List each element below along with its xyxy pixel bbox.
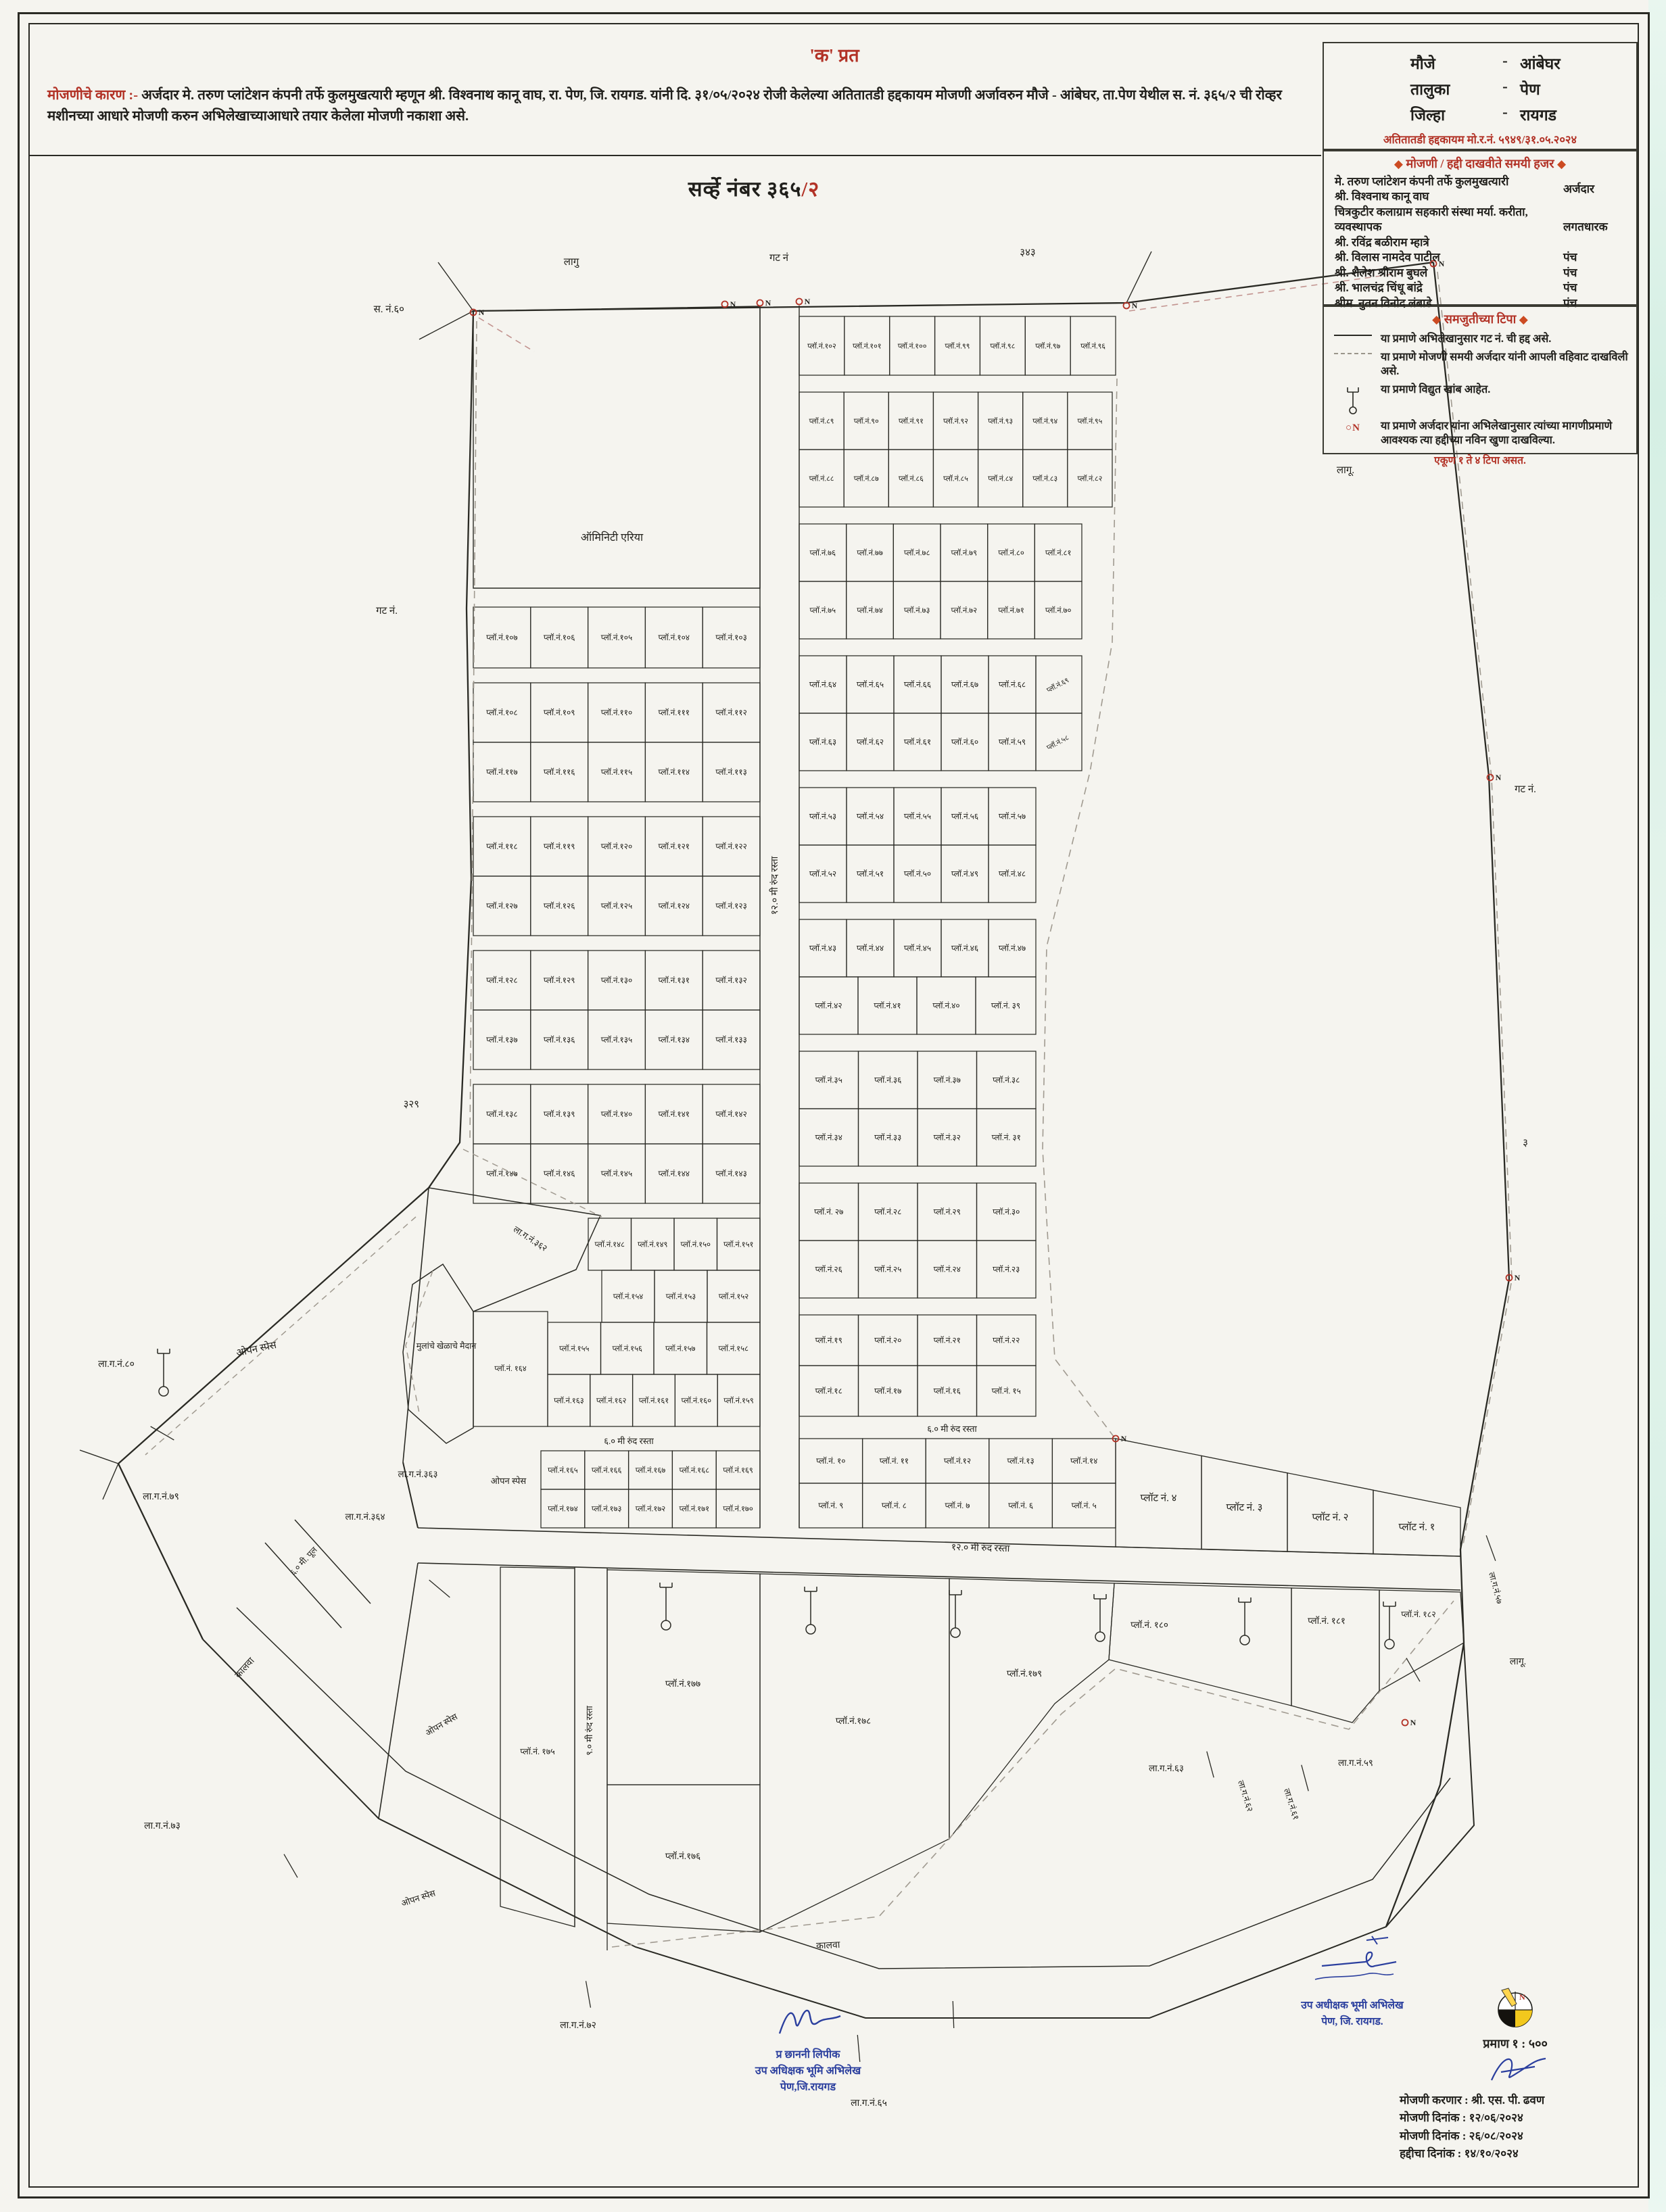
village-info-box: मौजे - आंबेघर तालुका - पेण जिल्हा - रायग… xyxy=(1323,42,1638,150)
svg-text:ला.ग.नं.६३: ला.ग.नं.६३ xyxy=(1149,1763,1184,1773)
village-row: मौजे - आंबेघर xyxy=(1324,50,1636,76)
svg-text:प्लॉ.नं.६२: प्लॉ.नं.६२ xyxy=(857,738,884,747)
svg-text:प्लॉ.नं.८२: प्लॉ.नं.८२ xyxy=(1077,475,1102,483)
svg-text:प्लॉ.नं.१७४: प्लॉ.नं.१७४ xyxy=(548,1505,578,1514)
svg-text:प्लॉ.नं.१२८: प्लॉ.नं.१२८ xyxy=(486,976,518,985)
svg-text:ला.ग.नं.६५: ला.ग.नं.६५ xyxy=(851,2098,887,2109)
svg-text:प्लॉ.नं.१५६: प्लॉ.नं.१५६ xyxy=(612,1345,642,1353)
diamond-icon: ◆ xyxy=(1432,313,1441,326)
svg-text:प्लॉ.नं. १८१: प्लॉ.नं. १८१ xyxy=(1308,1616,1346,1626)
svg-text:प्लॉ.नं.८८: प्लॉ.नं.८८ xyxy=(809,475,834,483)
svg-text:प्लॉ.नं.१३९: प्लॉ.नं.१३९ xyxy=(544,1109,575,1119)
svg-text:प्लॉ.नं.१७६: प्लॉ.नं.१७६ xyxy=(665,1851,700,1861)
svg-text:प्लॉ.नं.१७१: प्लॉ.नं.१७१ xyxy=(679,1505,709,1514)
svg-text:प्लॉ.नं.१०१: प्लॉ.नं.१०१ xyxy=(853,342,882,351)
svg-text:प्लॉ.नं.५०: प्लॉ.नं.५० xyxy=(904,869,931,879)
svg-text:प्लॉ.नं. १५: प्लॉ.नं. १५ xyxy=(992,1387,1021,1396)
svg-text:प्लॉ.नं.१२: प्लॉ.नं.१२ xyxy=(944,1456,971,1466)
svg-text:प्लॉ.नं.७४: प्लॉ.नं.७४ xyxy=(857,606,883,615)
svg-text:प्लॉ.नं.२०: प्लॉ.नं.२० xyxy=(874,1336,901,1345)
svg-text:प्लॉ.नं.१२३: प्लॉ.नं.१२३ xyxy=(715,901,747,911)
svg-text:प्लॉ.नं.८३: प्लॉ.नं.८३ xyxy=(1032,475,1057,483)
map-title: सर्व्हे नंबर ३६५/२ xyxy=(270,174,1237,203)
svg-text:प्लॉ.नं.२१: प्लॉ.नं.२१ xyxy=(934,1336,961,1345)
svg-text:प्लॉ.नं.४७: प्लॉ.नं.४७ xyxy=(999,944,1026,953)
svg-text:प्लॉ.नं.५५: प्लॉ.नं.५५ xyxy=(904,812,931,821)
district-label: जिल्हा xyxy=(1410,103,1490,125)
svg-text:प्लॉ.नं.७८: प्लॉ.नं.७८ xyxy=(904,549,930,558)
person-role: पंच xyxy=(1563,250,1628,265)
svg-text:प्लॉ.नं.१३३: प्लॉ.नं.१३३ xyxy=(715,1035,747,1044)
person-role: अर्जदार xyxy=(1563,182,1628,197)
taluka-label: तालुका xyxy=(1410,78,1490,99)
clerk-signature-block: प्र छाननी लिपीक उप अधिक्षक भूमि अभिलेख प… xyxy=(696,2002,920,2096)
svg-text:प्लॉ.नं.१४५: प्लॉ.नं.१४५ xyxy=(601,1169,633,1178)
svg-text:प्लॉ.नं.८५: प्लॉ.नं.८५ xyxy=(943,475,968,483)
svg-text:प्लॉ.नं.५१: प्लॉ.नं.५१ xyxy=(857,869,884,879)
svg-text:प्लॉ.नं.१६१: प्लॉ.नं.१६१ xyxy=(639,1397,669,1405)
svg-text:६.० मी. पूल: ६.० मी. पूल xyxy=(288,1544,320,1577)
person-name: श्री. भालचंद्र चिंधू बांद्रे xyxy=(1335,281,1563,295)
svg-text:प्लॉ.नं.४०: प्लॉ.नं.४० xyxy=(932,1001,959,1011)
svg-text:प्लॉ.नं.३६: प्लॉ.नं.३६ xyxy=(874,1076,901,1085)
dash: - xyxy=(1490,78,1520,99)
surveyor-signature-icon xyxy=(1478,2052,1552,2087)
measurement-reason: मोजणीचे कारण :- अर्जदार मे. तरुण प्लांटे… xyxy=(47,85,1305,127)
svg-text:प्लॉ.नं.५२: प्लॉ.नं.५२ xyxy=(809,869,836,879)
svg-text:प्लॉ.नं.१०२: प्लॉ.नं.१०२ xyxy=(807,342,836,351)
legend-notes-title: ◆ समजुतीच्या टिपा ◆ xyxy=(1329,311,1631,327)
svg-text:प्लॉ.नं.३५: प्लॉ.नं.३५ xyxy=(815,1076,842,1085)
svg-text:प्लॉ.नं.६८: प्लॉ.नं.६८ xyxy=(999,680,1026,690)
person-name: मे. तरुण प्लांटेशन कंपनी तर्फे कुलमुखत्य… xyxy=(1335,174,1563,205)
svg-text:ला.ग.नं.३६२: ला.ग.नं.३६२ xyxy=(512,1224,550,1253)
svg-text:प्लॉ.नं. ८: प्लॉ.नं. ८ xyxy=(882,1501,907,1510)
svg-text:ला.ग.नं.३६४: ला.ग.नं.३६४ xyxy=(346,1512,385,1522)
svg-text:प्लॉ.नं.९९: प्लॉ.नं.९९ xyxy=(945,342,970,351)
svg-text:प्लॉ.नं.५६: प्लॉ.नं.५६ xyxy=(951,812,978,821)
svg-text:ला.ग.नं.५९: ला.ग.नं.५९ xyxy=(1338,1758,1373,1768)
svg-text:प्लॉ.नं. २७: प्लॉ.नं. २७ xyxy=(814,1207,843,1217)
legend-notes-box: ◆ समजुतीच्या टिपा ◆ या प्रमाणे अभिलेखानु… xyxy=(1323,306,1638,454)
svg-text:ला.ग.नं.६२: ला.ग.नं.६२ xyxy=(1236,1779,1255,1813)
svg-text:प्लॉ.नं.११६: प्लॉ.नं.११६ xyxy=(544,767,575,777)
svg-text:प्लॉ.नं.२८: प्लॉ.नं.२८ xyxy=(874,1207,901,1217)
svg-text:प्लॉ.नं.११३: प्लॉ.नं.११३ xyxy=(715,767,747,777)
svg-text:मुलांचे खेळाचे मैदान: मुलांचे खेळाचे मैदान xyxy=(416,1341,477,1351)
svg-text:प्लॉ.नं.१४४: प्लॉ.नं.१४४ xyxy=(659,1169,690,1178)
clerk-line1: प्र छाननी लिपीक xyxy=(696,2047,920,2063)
svg-text:प्लॉ.नं.६१: प्लॉ.नं.६१ xyxy=(904,738,931,747)
solid-line-icon xyxy=(1331,332,1375,336)
svg-text:प्लॉ.नं.१२४: प्लॉ.नं.१२४ xyxy=(659,901,690,911)
svg-text:प्लॉ.नं.३०: प्लॉ.नं.३० xyxy=(993,1207,1020,1217)
svg-text:प्लॉ.नं.१५५: प्लॉ.नं.१५५ xyxy=(559,1345,590,1353)
persons-present-title-text: मोजणी / हद्दी दाखवीते समयी हजर xyxy=(1406,157,1554,170)
legend-note-row: या प्रमाणे विद्युत खांब आहेत. xyxy=(1329,381,1631,417)
legend-notes-title-text: समजुतीच्या टिपा xyxy=(1444,312,1517,326)
svg-text:प्लॉ.नं.१३७: प्लॉ.नं.१३७ xyxy=(486,1035,518,1044)
svg-text:ओपन स्पेस: ओपन स्पेस xyxy=(400,1888,437,1908)
svg-text:६.० मी रुंद रस्ता: ६.० मी रुंद रस्ता xyxy=(604,1436,654,1446)
svg-text:प्लॉ.नं.१४३: प्लॉ.नं.१४३ xyxy=(715,1169,747,1178)
svg-text:N: N xyxy=(1132,301,1138,310)
svg-text:प्लॉ.नं.१३६: प्लॉ.नं.१३६ xyxy=(544,1035,575,1044)
svg-text:N: N xyxy=(765,298,771,308)
svg-text:प्लॉ.नं. १८२: प्लॉ.नं. १८२ xyxy=(1401,1610,1436,1619)
svg-text:प्लॉ.नं.१०९: प्लॉ.नं.१०९ xyxy=(544,708,575,717)
svg-text:प्लॉ.नं.४१: प्लॉ.नं.४१ xyxy=(874,1001,901,1011)
svg-text:प्लॉ.नं.४८: प्लॉ.नं.४८ xyxy=(999,869,1026,879)
svg-text:प्लॉ.नं.११९: प्लॉ.नं.११९ xyxy=(544,842,575,851)
svg-text:प्लॉ.नं.१५९: प्लॉ.नं.१५९ xyxy=(723,1397,754,1405)
svg-text:प्लॉ.नं.८६: प्लॉ.नं.८६ xyxy=(899,475,924,483)
svg-text:प्लॉ.नं.१४०: प्लॉ.नं.१४० xyxy=(601,1109,633,1119)
svg-text:लागू.: लागू. xyxy=(1510,1657,1527,1667)
svg-text:प्लॉ.नं.१८: प्लॉ.नं.१८ xyxy=(815,1387,842,1396)
svg-text:प्लॉ.नं.१६७: प्लॉ.नं.१६७ xyxy=(636,1466,666,1475)
electric-pole-icon xyxy=(1331,383,1375,415)
survey-map-sheet: NNNNNNNNNNप्लॉ.नं.१०७प्लॉ.नं.१०६प्लॉ.नं.… xyxy=(0,0,1666,2212)
reason-text: अर्जदार मे. तरुण प्लांटेशन कंपनी तर्फे क… xyxy=(47,88,1282,124)
svg-text:प्लॉ.नं.१०६: प्लॉ.नं.१०६ xyxy=(544,633,575,642)
svg-text:प्लॉ.नं. ३१: प्लॉ.नं. ३१ xyxy=(992,1133,1021,1143)
svg-text:प्लॉ.नं.५४: प्लॉ.नं.५४ xyxy=(857,812,884,821)
svg-text:प्लॉ.नं.१६५: प्लॉ.नं.१६५ xyxy=(548,1466,578,1475)
svg-text:प्लॉ.नं.१३१: प्लॉ.नं.१३१ xyxy=(659,976,690,985)
svg-text:प्लॉ.नं.१५४: प्लॉ.नं.१५४ xyxy=(613,1293,644,1301)
svg-text:प्लॉ.नं. ६: प्लॉ.नं. ६ xyxy=(1008,1501,1033,1510)
svg-text:प्लॉ.नं.१४२: प्लॉ.नं.१४२ xyxy=(715,1109,747,1119)
svg-text:प्लॉ.नं.२४: प्लॉ.नं.२४ xyxy=(934,1265,961,1274)
svg-text:प्लॉ.नं.१४: प्लॉ.नं.१४ xyxy=(1070,1456,1097,1466)
svg-text:प्लॉ.नं.१९: प्लॉ.नं.१९ xyxy=(815,1336,842,1345)
person-name: चित्रकुटीर कलाग्राम सहकारी संस्था मर्या.… xyxy=(1335,205,1563,250)
svg-text:प्लॉ.नं. ११: प्लॉ.नं. ११ xyxy=(880,1456,909,1466)
svg-text:प्लॉ.नं.८०: प्लॉ.नं.८० xyxy=(998,549,1024,558)
person-role: पंच xyxy=(1563,281,1628,295)
svg-text:६.० मी रुंद रस्ता: ६.० मी रुंद रस्ता xyxy=(927,1424,977,1434)
svg-text:प्लॉट नं. १: प्लॉट नं. १ xyxy=(1399,1521,1435,1533)
svg-text:प्लॉ.नं.७०: प्लॉ.नं.७० xyxy=(1045,606,1072,615)
legend-note-row: या प्रमाणे अभिलेखानुसार गट नं. ची हद्द अ… xyxy=(1329,330,1631,348)
dashed-line-icon xyxy=(1331,350,1375,354)
svg-text:प्लॉ.नं.१४८: प्लॉ.नं.१४८ xyxy=(594,1241,625,1249)
legend-note-text: या प्रमाणे अभिलेखानुसार गट नं. ची हद्द अ… xyxy=(1381,332,1551,346)
person-name: श्री. शैलेश श्रीराम बुघले xyxy=(1335,266,1563,281)
svg-text:ओपन स्पेस: ओपन स्पेस xyxy=(423,1711,459,1737)
svg-text:N: N xyxy=(1496,773,1502,782)
survey-date-1: मोजणी दिनांक : १२/०६/२०२४ xyxy=(1400,2109,1639,2127)
person-name: श्री. विलास नामदेव पाटील xyxy=(1335,250,1563,265)
svg-text:प्लॉ.नं.१३०: प्लॉ.नं.१३० xyxy=(601,976,633,985)
case-number-line: अतितातडी हद्दकायम मो.र.नं. ५९४९/३१.०५.२०… xyxy=(1324,131,1636,147)
svg-text:प्लॉ.नं.१५३: प्लॉ.नं.१५३ xyxy=(666,1293,696,1301)
svg-text:प्लॉ.नं.३८: प्लॉ.नं.३८ xyxy=(993,1076,1020,1085)
svg-text:प्लॉ.नं.१२९: प्लॉ.नं.१२९ xyxy=(544,976,575,985)
diamond-icon: ◆ xyxy=(1394,158,1403,170)
map-title-main: सर्व्हे नंबर ३६५ xyxy=(688,177,802,201)
svg-text:प्लॉ.नं.१११: प्लॉ.नं.१११ xyxy=(659,708,690,717)
svg-text:प्लॉ.नं.९५: प्लॉ.नं.९५ xyxy=(1077,417,1102,426)
officer-signature-icon xyxy=(1302,1935,1403,1993)
svg-text:प्लॉट नं. ३: प्लॉट नं. ३ xyxy=(1227,1501,1263,1514)
svg-text:प्लॉ.नं.५७: प्लॉ.नं.५७ xyxy=(999,812,1026,821)
svg-text:३२९: ३२९ xyxy=(404,1099,419,1110)
svg-text:N: N xyxy=(1519,1992,1525,2002)
svg-text:प्लॉ.नं.९०: प्लॉ.नं.९० xyxy=(854,417,879,426)
svg-text:प्लॉ.नं.१२२: प्लॉ.नं.१२२ xyxy=(715,842,747,851)
legend-note-text: या प्रमाणे अर्जदार यांना अभिलेखानुसार त्… xyxy=(1381,419,1629,448)
svg-text:९.० मी रुंद रस्ता: ९.० मी रुंद रस्ता xyxy=(584,1706,594,1756)
svg-text:प्लॉ.नं.१५१: प्लॉ.नं.१५१ xyxy=(723,1241,754,1249)
dash: - xyxy=(1490,52,1520,74)
svg-text:प्लॉ.नं.७६: प्लॉ.नं.७६ xyxy=(810,549,836,558)
svg-text:ला.ग.नं.८०: ला.ग.नं.८० xyxy=(98,1359,135,1370)
svg-text:प्लॉ.नं.३७: प्लॉ.नं.३७ xyxy=(934,1076,961,1085)
diamond-icon: ◆ xyxy=(1519,313,1528,326)
svg-text:प्लॉ.नं.१२७: प्लॉ.नं.१२७ xyxy=(486,901,518,911)
svg-text:प्लॉ.नं. १०: प्लॉ.नं. १० xyxy=(816,1456,845,1466)
clerk-line3: पेण,जि.रायगड xyxy=(696,2079,920,2096)
svg-text:प्लॉ.नं.११०: प्लॉ.नं.११० xyxy=(601,708,633,717)
svg-text:N: N xyxy=(1515,1273,1521,1282)
north-compass-icon: N xyxy=(1494,1986,1537,2029)
svg-text:प्लॉ.नं. १८०: प्लॉ.नं. १८० xyxy=(1130,1620,1168,1630)
scale-and-dates-block: N प्रमाण १ : ५०० मोजणी करणार : श्री. एस.… xyxy=(1391,1986,1639,2163)
svg-text:प्लॉ.नं.९३: प्लॉ.नं.९३ xyxy=(988,417,1013,426)
svg-text:प्लॉ.नं.७३: प्लॉ.नं.७३ xyxy=(904,606,930,615)
svg-text:प्लॉ.नं.१६३: प्लॉ.नं.१६३ xyxy=(554,1397,584,1405)
dash: - xyxy=(1490,103,1520,125)
surveyor-name: मोजणी करणार : श्री. एस. पी. ढवण xyxy=(1400,2092,1639,2109)
svg-text:प्लॉ.नं. १६४: प्लॉ.नं. १६४ xyxy=(494,1364,526,1373)
svg-text:प्लॉ.नं.४४: प्लॉ.नं.४४ xyxy=(857,944,884,953)
person-role: पंच xyxy=(1563,266,1628,281)
svg-text:प्लॉ.नं. ९: प्लॉ.नं. ९ xyxy=(818,1501,843,1510)
svg-text:प्लॉ.नं. ५: प्लॉ.नं. ५ xyxy=(1072,1501,1097,1510)
svg-text:३: ३ xyxy=(1523,1138,1528,1149)
svg-text:ऑमिनिटी एरिया: ऑमिनिटी एरिया xyxy=(581,531,644,544)
persons-present-box: ◆ मोजणी / हद्दी दाखवीते समयी हजर ◆ मे. त… xyxy=(1323,150,1638,306)
clerk-signature-icon xyxy=(767,2002,849,2042)
svg-text:प्लॉ.नं.८४: प्लॉ.नं.८४ xyxy=(988,475,1013,483)
reason-label: मोजणीचे कारण :- xyxy=(47,88,138,103)
svg-text:प्लॉ.नं.६९: प्लॉ.नं.६९ xyxy=(1045,675,1070,694)
legend-note-row: ○Nया प्रमाणे अर्जदार यांना अभिलेखानुसार … xyxy=(1329,417,1631,450)
svg-text:प्लॉ.नं.६०: प्लॉ.नं.६० xyxy=(951,738,978,747)
svg-text:१२.० मी रुंद रस्ता: १२.० मी रुंद रस्ता xyxy=(769,856,780,915)
svg-text:ला.ग.नं.७९: ला.ग.नं.७९ xyxy=(143,1491,179,1502)
svg-text:प्लॉ.नं.१४६: प्लॉ.नं.१४६ xyxy=(544,1169,575,1178)
svg-text:प्लॉ.नं.१०३: प्लॉ.नं.१०३ xyxy=(715,633,747,642)
svg-text:प्लॉ.नं.१५२: प्लॉ.नं.१५२ xyxy=(719,1293,749,1301)
svg-text:प्लॉ.नं.१३: प्लॉ.नं.१३ xyxy=(1007,1456,1034,1466)
svg-text:लागु: लागु xyxy=(564,257,580,268)
person-row: श्री. विलास नामदेव पाटीलपंच xyxy=(1329,250,1631,265)
boundary-date: हद्दीचा दिनांक : १४/१०/२०२४ xyxy=(1400,2145,1639,2163)
svg-text:प्लॉ.नं.१३२: प्लॉ.नं.१३२ xyxy=(715,976,747,985)
legend-note-text: या प्रमाणे विद्युत खांब आहेत. xyxy=(1381,383,1490,397)
svg-text:कालवा: कालवा xyxy=(233,1656,257,1681)
svg-text:प्लॉ.नं.१७: प्लॉ.नं.१७ xyxy=(874,1387,901,1396)
svg-text:प्लॉ.नं.९२: प्लॉ.नं.९२ xyxy=(943,417,968,426)
svg-text:प्लॉ.नं.१५८: प्लॉ.नं.१५८ xyxy=(718,1345,748,1353)
svg-text:प्लॉ.नं.५८: प्लॉ.नं.५८ xyxy=(1045,733,1070,752)
labels-layer: प्लॉ.नं.१०७प्लॉ.नं.१०६प्लॉ.नं.१०५प्लॉ.नं… xyxy=(98,247,1536,2109)
svg-text:प्लॉ.नं.७५: प्लॉ.नं.७५ xyxy=(810,606,836,615)
svg-text:प्लॉ.नं.१६८: प्लॉ.नं.१६८ xyxy=(679,1466,709,1475)
svg-text:ला.ग.नं.६१: ला.ग.नं.६१ xyxy=(1282,1787,1301,1821)
person-row: श्री. शैलेश श्रीराम बुघलेपंच xyxy=(1329,266,1631,281)
svg-text:प्लॉ.नं.१२६: प्लॉ.नं.१२६ xyxy=(544,901,575,911)
legend-note-row: या प्रमाणे मोजणी समयी अर्जदार यांनी आपली… xyxy=(1329,348,1631,381)
district-row: जिल्हा - रायगड xyxy=(1324,101,1636,127)
svg-text:प्लॉ.नं.१६०: प्लॉ.नं.१६० xyxy=(681,1397,711,1405)
vahivat-dashed-layer xyxy=(145,269,1512,1947)
svg-text:प्लॉ.नं.९४: प्लॉ.नं.९४ xyxy=(1032,417,1057,426)
svg-text:प्लॉ.नं.२२: प्लॉ.नं.२२ xyxy=(993,1336,1020,1345)
svg-text:प्लॉ.नं.९६: प्लॉ.नं.९६ xyxy=(1080,342,1105,351)
person-row: श्री. भालचंद्र चिंधू बांद्रेपंच xyxy=(1329,281,1631,295)
svg-text:ला.ग.नं.७३: ला.ग.नं.७३ xyxy=(144,1821,181,1831)
svg-text:प्लॉ.नं.१०५: प्लॉ.नं.१०५ xyxy=(601,633,633,642)
svg-text:प्लॉ.नं.३४: प्लॉ.नं.३४ xyxy=(815,1133,842,1143)
survey-date-2: मोजणी दिनांक : २६/०८/२०२४ xyxy=(1400,2127,1639,2145)
village-label: मौजे xyxy=(1410,52,1490,74)
legend-note-rows: या प्रमाणे अभिलेखानुसार गट नं. ची हद्द अ… xyxy=(1329,330,1631,450)
svg-text:प्लॉ.नं.८९: प्लॉ.नं.८९ xyxy=(809,417,834,426)
svg-text:प्लॉ.नं.१७३: प्लॉ.नं.१७३ xyxy=(592,1505,622,1514)
svg-text:N: N xyxy=(730,299,736,309)
svg-text:प्लॉ.नं.६४: प्लॉ.नं.६४ xyxy=(809,680,836,690)
svg-text:N: N xyxy=(1121,1434,1127,1443)
svg-text:प्लॉट नं. २: प्लॉट नं. २ xyxy=(1312,1511,1349,1523)
svg-text:गट नं.: गट नं. xyxy=(376,605,398,617)
svg-text:प्लॉ.नं.८७: प्लॉ.नं.८७ xyxy=(854,475,879,483)
svg-text:प्लॉ.नं.१७२: प्लॉ.नं.१७२ xyxy=(636,1505,666,1514)
persons-present-title: ◆ मोजणी / हद्दी दाखवीते समयी हजर ◆ xyxy=(1329,155,1631,172)
svg-text:प्लॉ.नं.७२: प्लॉ.नं.७२ xyxy=(951,606,978,615)
svg-text:प्लॉ.नं.४९: प्लॉ.नं.४९ xyxy=(951,869,978,879)
persons-present-rows: मे. तरुण प्लांटेशन कंपनी तर्फे कुलमुखत्य… xyxy=(1329,174,1631,311)
svg-text:प्लॉ.नं.३३: प्लॉ.नं.३३ xyxy=(874,1133,901,1143)
svg-text:प्लॉ.नं.१५७: प्लॉ.नं.१५७ xyxy=(665,1345,696,1353)
svg-text:प्लॉ.नं.१६६: प्लॉ.नं.१६६ xyxy=(592,1466,622,1475)
legend-note-text: या प्रमाणे मोजणी समयी अर्जदार यांनी आपली… xyxy=(1381,350,1629,379)
svg-text:प्लॉ.नं.९८: प्लॉ.नं.९८ xyxy=(990,342,1015,351)
svg-text:प्लॉ.नं.१०७: प्लॉ.नं.१०७ xyxy=(486,633,518,642)
svg-text:N: N xyxy=(1410,1718,1417,1727)
clerk-line2: उप अधिक्षक भूमि अभिलेख xyxy=(696,2063,920,2079)
legend-footer: एकूण १ ते ४ टिपा असत. xyxy=(1329,452,1631,467)
svg-text:प्लॉ.नं.१४७: प्लॉ.नं.१४७ xyxy=(486,1169,518,1178)
svg-text:प्लॉ.नं.१३४: प्लॉ.नं.१३४ xyxy=(659,1035,690,1044)
svg-text:ला.ग.नं.७२: ला.ग.नं.७२ xyxy=(560,2020,596,2031)
svg-text:प्लॉ.नं.१०४: प्लॉ.नं.१०४ xyxy=(659,633,690,642)
svg-text:ला.ग.नं.३६३: ला.ग.नं.३६३ xyxy=(398,1469,438,1479)
svg-text:प्लॉ.नं.११८: प्लॉ.नं.११८ xyxy=(486,842,518,851)
svg-text:N: N xyxy=(805,297,811,306)
svg-text:प्लॉ.नं.१०८: प्लॉ.नं.१०८ xyxy=(486,708,518,717)
svg-text:स. नं.६०: स. नं.६० xyxy=(374,304,404,315)
svg-text:प्लॉ.नं.९१: प्लॉ.नं.९१ xyxy=(899,417,924,426)
svg-text:N: N xyxy=(479,308,485,317)
map-title-suffix: /२ xyxy=(802,177,820,201)
person-row: चित्रकुटीर कलाग्राम सहकारी संस्था मर्या.… xyxy=(1329,205,1631,250)
svg-text:प्लॉ.नं.५३: प्लॉ.नं.५३ xyxy=(809,812,836,821)
svg-text:प्लॉ.नं.४२: प्लॉ.नं.४२ xyxy=(815,1001,842,1011)
svg-text:प्लॉ.नं.१५०: प्लॉ.नं.१५० xyxy=(680,1241,711,1249)
svg-text:प्लॉ.नं.१००: प्लॉ.नं.१०० xyxy=(898,342,927,351)
svg-text:प्लॉ.नं.२३: प्लॉ.नं.२३ xyxy=(993,1265,1020,1274)
svg-text:प्लॉ.नं.६३: प्लॉ.नं.६३ xyxy=(809,738,836,747)
svg-text:प्लॉ.नं.५९: प्लॉ.नं.५९ xyxy=(999,738,1026,747)
village-value: आंबेघर xyxy=(1520,52,1561,74)
svg-text:प्लॉ.नं.२६: प्लॉ.नं.२६ xyxy=(815,1265,842,1274)
svg-text:प्लॉ.नं.१६: प्लॉ.नं.१६ xyxy=(934,1387,961,1396)
svg-text:प्लॉ.नं.३२: प्लॉ.नं.३२ xyxy=(934,1133,961,1143)
svg-text:प्लॉ.नं.११२: प्लॉ.नं.११२ xyxy=(715,708,747,717)
map-scale: प्रमाण १ : ५०० xyxy=(1391,2036,1639,2052)
svg-text:ओपन स्पेस: ओपन स्पेस xyxy=(491,1476,527,1486)
svg-text:प्लॉ.नं.१४९: प्लॉ.नं.१४९ xyxy=(638,1241,668,1249)
svg-text:प्लॉ.नं.१३५: प्लॉ.नं.१३५ xyxy=(601,1035,633,1044)
svg-text:प्लॉ.नं.४५: प्लॉ.नं.४५ xyxy=(904,944,931,953)
svg-text:प्लॉ.नं.११४: प्लॉ.नं.११४ xyxy=(659,767,690,777)
svg-text:गट नं.: गट नं. xyxy=(1515,784,1536,795)
svg-text:३४३: ३४३ xyxy=(1020,247,1035,258)
svg-text:ला.ग.नं.५७: ला.ग.नं.५७ xyxy=(1487,1571,1504,1605)
svg-text:प्लॉ.नं.६७: प्लॉ.नं.६७ xyxy=(951,680,978,690)
on-marker-icon: ○N xyxy=(1331,419,1375,435)
svg-text:प्लॉ.नं.१७९: प्लॉ.नं.१७९ xyxy=(1007,1668,1042,1679)
svg-text:प्लॉ.नं.४६: प्लॉ.नं.४६ xyxy=(951,944,978,953)
svg-text:प्लॉ.नं.१६९: प्लॉ.नं.१६९ xyxy=(723,1466,753,1475)
svg-text:प्लॉ.नं.१४१: प्लॉ.नं.१४१ xyxy=(659,1109,690,1119)
person-row: मे. तरुण प्लांटेशन कंपनी तर्फे कुलमुखत्य… xyxy=(1329,174,1631,205)
svg-text:प्लॉ.नं.१७०: प्लॉ.नं.१७० xyxy=(723,1505,753,1514)
markers-layer: NNNNNNNNNN xyxy=(151,259,1521,2062)
svg-text:प्लॉ.नं.४३: प्लॉ.नं.४३ xyxy=(809,944,836,953)
svg-text:प्लॉ.नं.१२०: प्लॉ.नं.१२० xyxy=(601,842,633,851)
taluka-value: पेण xyxy=(1520,78,1540,99)
svg-text:प्लॉ.नं. ३९: प्लॉ.नं. ३९ xyxy=(991,1001,1020,1011)
person-role: लगतधारक xyxy=(1563,220,1628,235)
svg-text:प्लॉ.नं.८१: प्लॉ.नं.८१ xyxy=(1045,549,1072,558)
svg-text:प्लॉ.नं.१६२: प्लॉ.नं.१६२ xyxy=(596,1397,627,1405)
svg-text:प्लॉ.नं.९७: प्लॉ.नं.९७ xyxy=(1035,342,1060,351)
roads-layer xyxy=(418,306,1460,1950)
svg-text:प्लॉ.नं.७१: प्लॉ.नं.७१ xyxy=(998,606,1024,615)
svg-text:गट नं: गट नं xyxy=(769,252,789,264)
diamond-icon: ◆ xyxy=(1557,158,1566,170)
svg-text:प्लॉ.नं.७७: प्लॉ.नं.७७ xyxy=(857,549,883,558)
svg-text:प्लॉ.नं.१७८: प्लॉ.नं.१७८ xyxy=(836,1716,871,1726)
svg-text:प्लॉ.नं.२५: प्लॉ.नं.२५ xyxy=(874,1265,901,1274)
district-value: रायगड xyxy=(1520,103,1556,125)
svg-text:प्लॉ.नं.१२५: प्लॉ.नं.१२५ xyxy=(601,901,633,911)
svg-text:प्लॉ.नं. ७: प्लॉ.नं. ७ xyxy=(945,1501,970,1510)
svg-text:प्लॉ.नं.२९: प्लॉ.नं.२९ xyxy=(934,1207,961,1217)
taluka-row: तालुका - पेण xyxy=(1324,76,1636,101)
svg-text:प्लॉ.नं. १७५: प्लॉ.नं. १७५ xyxy=(520,1747,555,1756)
svg-text:प्लॉ.नं.१७७: प्लॉ.नं.१७७ xyxy=(665,1679,700,1689)
svg-text:प्लॉ.नं.७९: प्लॉ.नं.७९ xyxy=(951,549,978,558)
svg-text:प्लॉ.नं.१३८: प्लॉ.नं.१३८ xyxy=(486,1109,518,1119)
svg-text:प्लॉ.नं.१२१: प्लॉ.नं.१२१ xyxy=(659,842,690,851)
svg-text:प्लॉ.नं.६५: प्लॉ.नं.६५ xyxy=(857,680,884,690)
